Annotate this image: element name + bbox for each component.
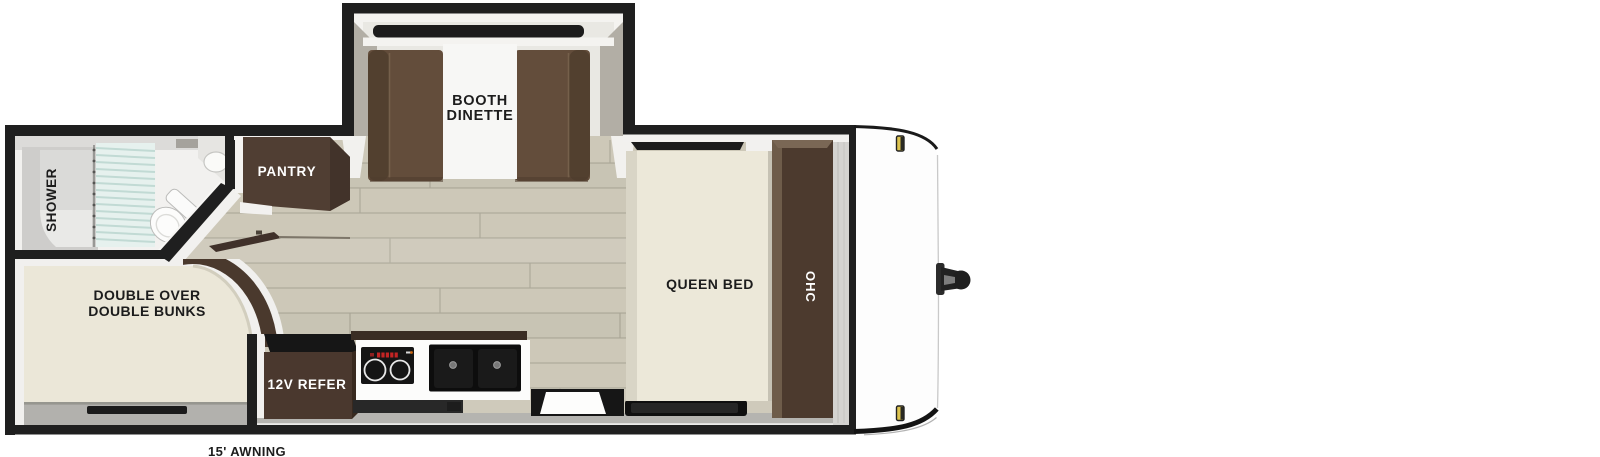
svg-text:15' AWNING: 15' AWNING [208, 444, 286, 457]
svg-text:SHOWER: SHOWER [44, 168, 59, 232]
svg-text:BOOTH: BOOTH [452, 93, 508, 109]
svg-text:12V REFER: 12V REFER [268, 377, 347, 392]
svg-text:QUEEN BED: QUEEN BED [666, 276, 754, 292]
svg-text:PANTRY: PANTRY [258, 164, 317, 179]
svg-text:DINETTE: DINETTE [447, 108, 514, 124]
svg-text:OHC: OHC [803, 271, 818, 303]
svg-text:DOUBLE BUNKS: DOUBLE BUNKS [88, 303, 206, 319]
svg-text:DOUBLE OVER: DOUBLE OVER [93, 287, 200, 303]
